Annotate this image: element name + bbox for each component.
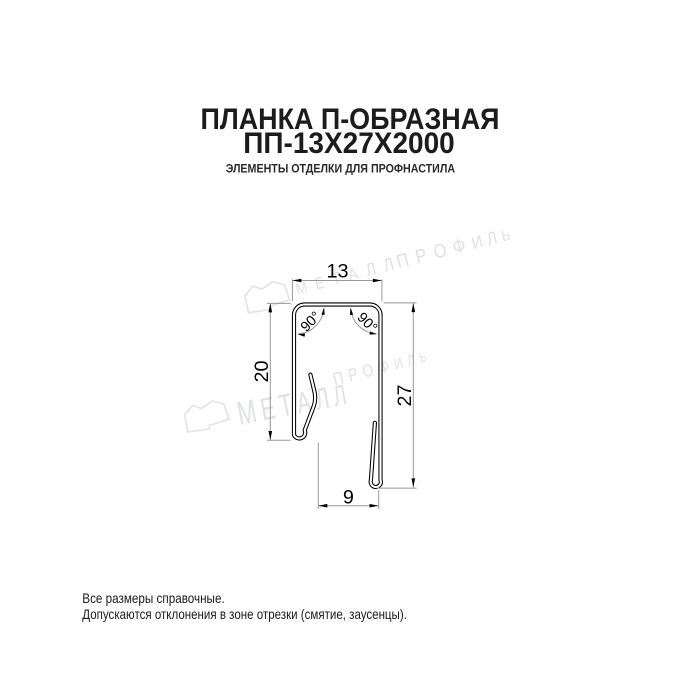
svg-text:9: 9 (343, 486, 354, 508)
svg-text:20: 20 (251, 360, 273, 382)
svg-text:ПП-13Х27Х2000: ПП-13Х27Х2000 (243, 127, 455, 160)
svg-text:Все размеры справочные.: Все размеры справочные. (82, 591, 224, 606)
svg-text:Допускаются отклонения в зоне: Допускаются отклонения в зоне отрезки (с… (82, 607, 407, 622)
svg-text:27: 27 (394, 384, 416, 406)
svg-text:13: 13 (326, 260, 348, 282)
svg-text:ЭЛЕМЕНТЫ ОТДЕЛКИ ДЛЯ ПРОФНАСТИ: ЭЛЕМЕНТЫ ОТДЕЛКИ ДЛЯ ПРОФНАСТИЛА (226, 163, 455, 175)
